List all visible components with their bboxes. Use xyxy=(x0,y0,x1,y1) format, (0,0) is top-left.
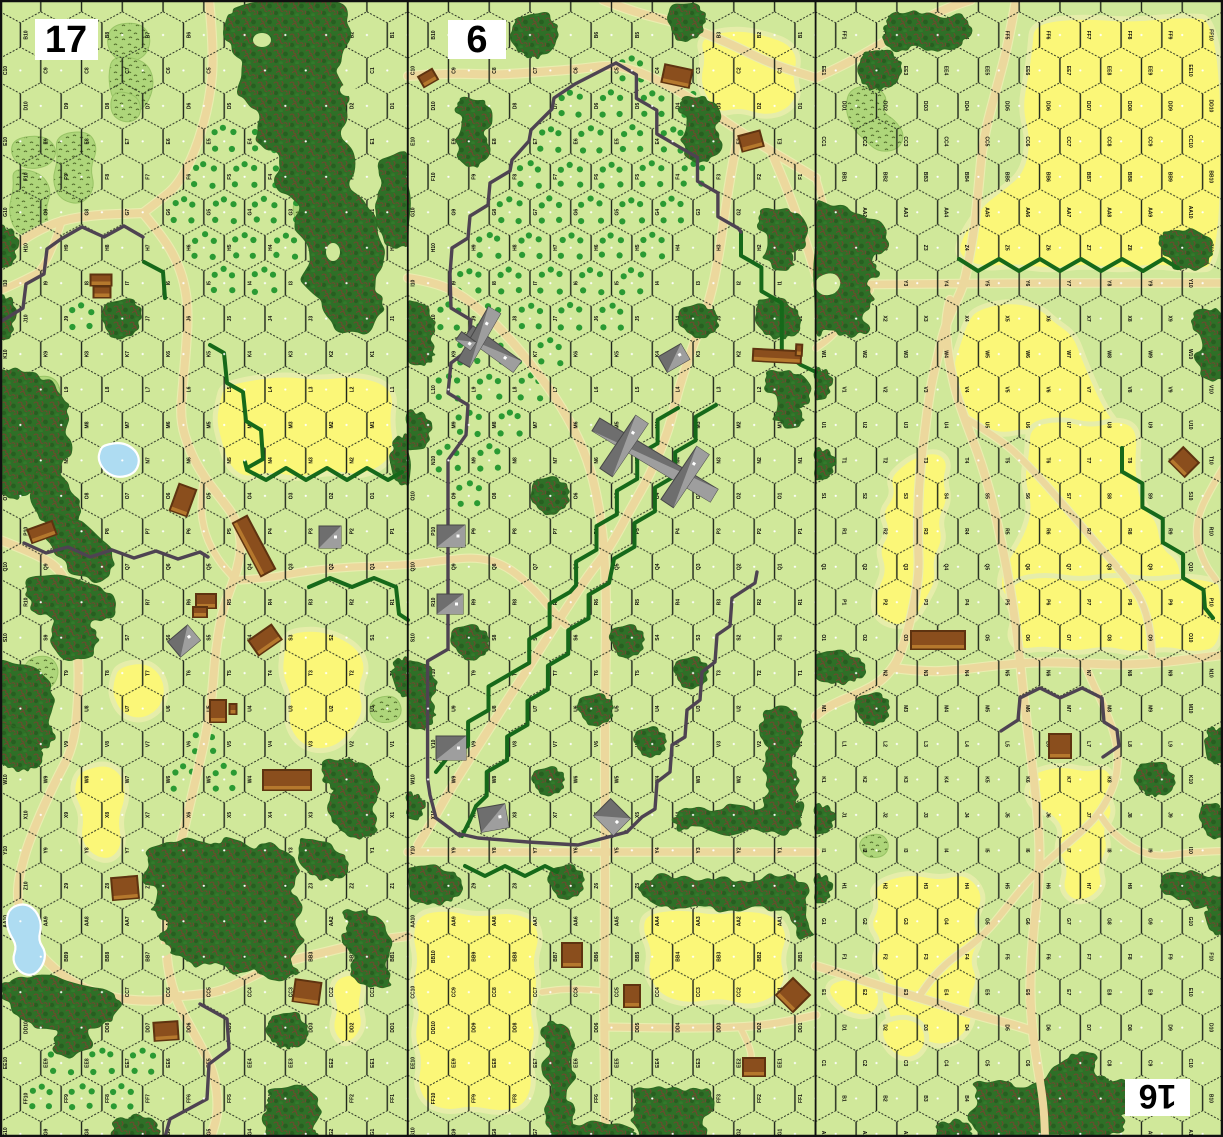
svg-text:17: 17 xyxy=(45,19,87,61)
svg-text:6: 6 xyxy=(466,19,487,61)
svg-text:16: 16 xyxy=(1139,1077,1177,1115)
